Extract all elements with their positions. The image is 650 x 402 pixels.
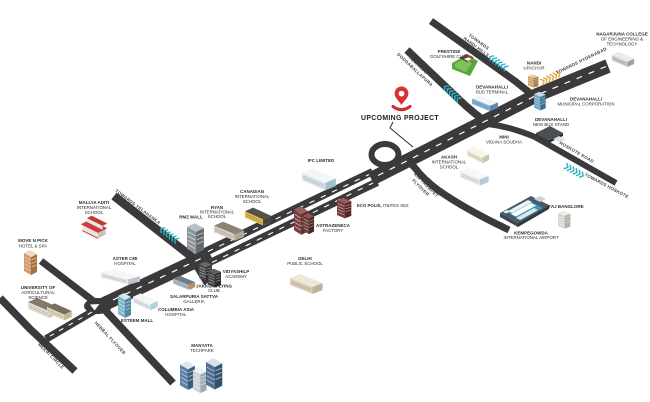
svg-text:UPACHAR: UPACHAR <box>523 66 544 71</box>
svg-text:SCHOOL: SCHOOL <box>85 210 104 215</box>
svg-text:TAJ BANGLORE: TAJ BANGLORE <box>548 204 583 209</box>
svg-text:CLUB: CLUB <box>208 288 220 293</box>
svg-text:MOVE N PICK: MOVE N PICK <box>18 238 49 243</box>
svg-text:SCHOOL: SCHOOL <box>208 214 227 219</box>
svg-text:TECHNOLOGY: TECHNOLOGY <box>607 42 638 47</box>
svg-text:HOSPITAL: HOSPITAL <box>114 261 136 266</box>
svg-text:UPCOMING PROJECT: UPCOMING PROJECT <box>361 115 439 122</box>
svg-text:ESTEEM MALL: ESTEEM MALL <box>121 318 154 323</box>
svg-text:RMZ MALL: RMZ MALL <box>179 215 203 220</box>
svg-text:GOLFSHIRE CLUB: GOLFSHIRE CLUB <box>430 54 468 59</box>
svg-text:HOTEL & SPA: HOTEL & SPA <box>19 244 47 249</box>
svg-text:TECHPARK: TECHPARK <box>190 348 214 353</box>
svg-text:BUS TERMINAL: BUS TERMINAL <box>476 90 509 95</box>
svg-text:FACTORY: FACTORY <box>323 228 344 233</box>
svg-text:MUNICIPAL CORPORATION: MUNICIPAL CORPORATION <box>558 102 615 107</box>
svg-text:IFC LIMITED: IFC LIMITED <box>308 158 335 163</box>
svg-text:SCHOOL: SCHOOL <box>440 165 459 170</box>
svg-text:PUBLIC SCHOOL: PUBLIC SCHOOL <box>287 261 323 266</box>
svg-text:GALLERIA: GALLERIA <box>183 299 205 304</box>
svg-text:HOSPITAL: HOSPITAL <box>165 312 187 317</box>
svg-text:SCIENCE: SCIENCE <box>28 295 48 300</box>
svg-text:ECO POLIS, IT&ITES SEZ: ECO POLIS, IT&ITES SEZ <box>357 203 409 208</box>
svg-text:INTERNATIONAL AIRPORT: INTERNATIONAL AIRPORT <box>503 235 558 240</box>
svg-text:ACADEMY: ACADEMY <box>225 274 247 279</box>
svg-text:VIDANA SOUDHA: VIDANA SOUDHA <box>486 140 522 145</box>
svg-text:NEW BUS STAND: NEW BUS STAND <box>533 122 569 127</box>
svg-text:SCHOOL: SCHOOL <box>243 199 262 204</box>
